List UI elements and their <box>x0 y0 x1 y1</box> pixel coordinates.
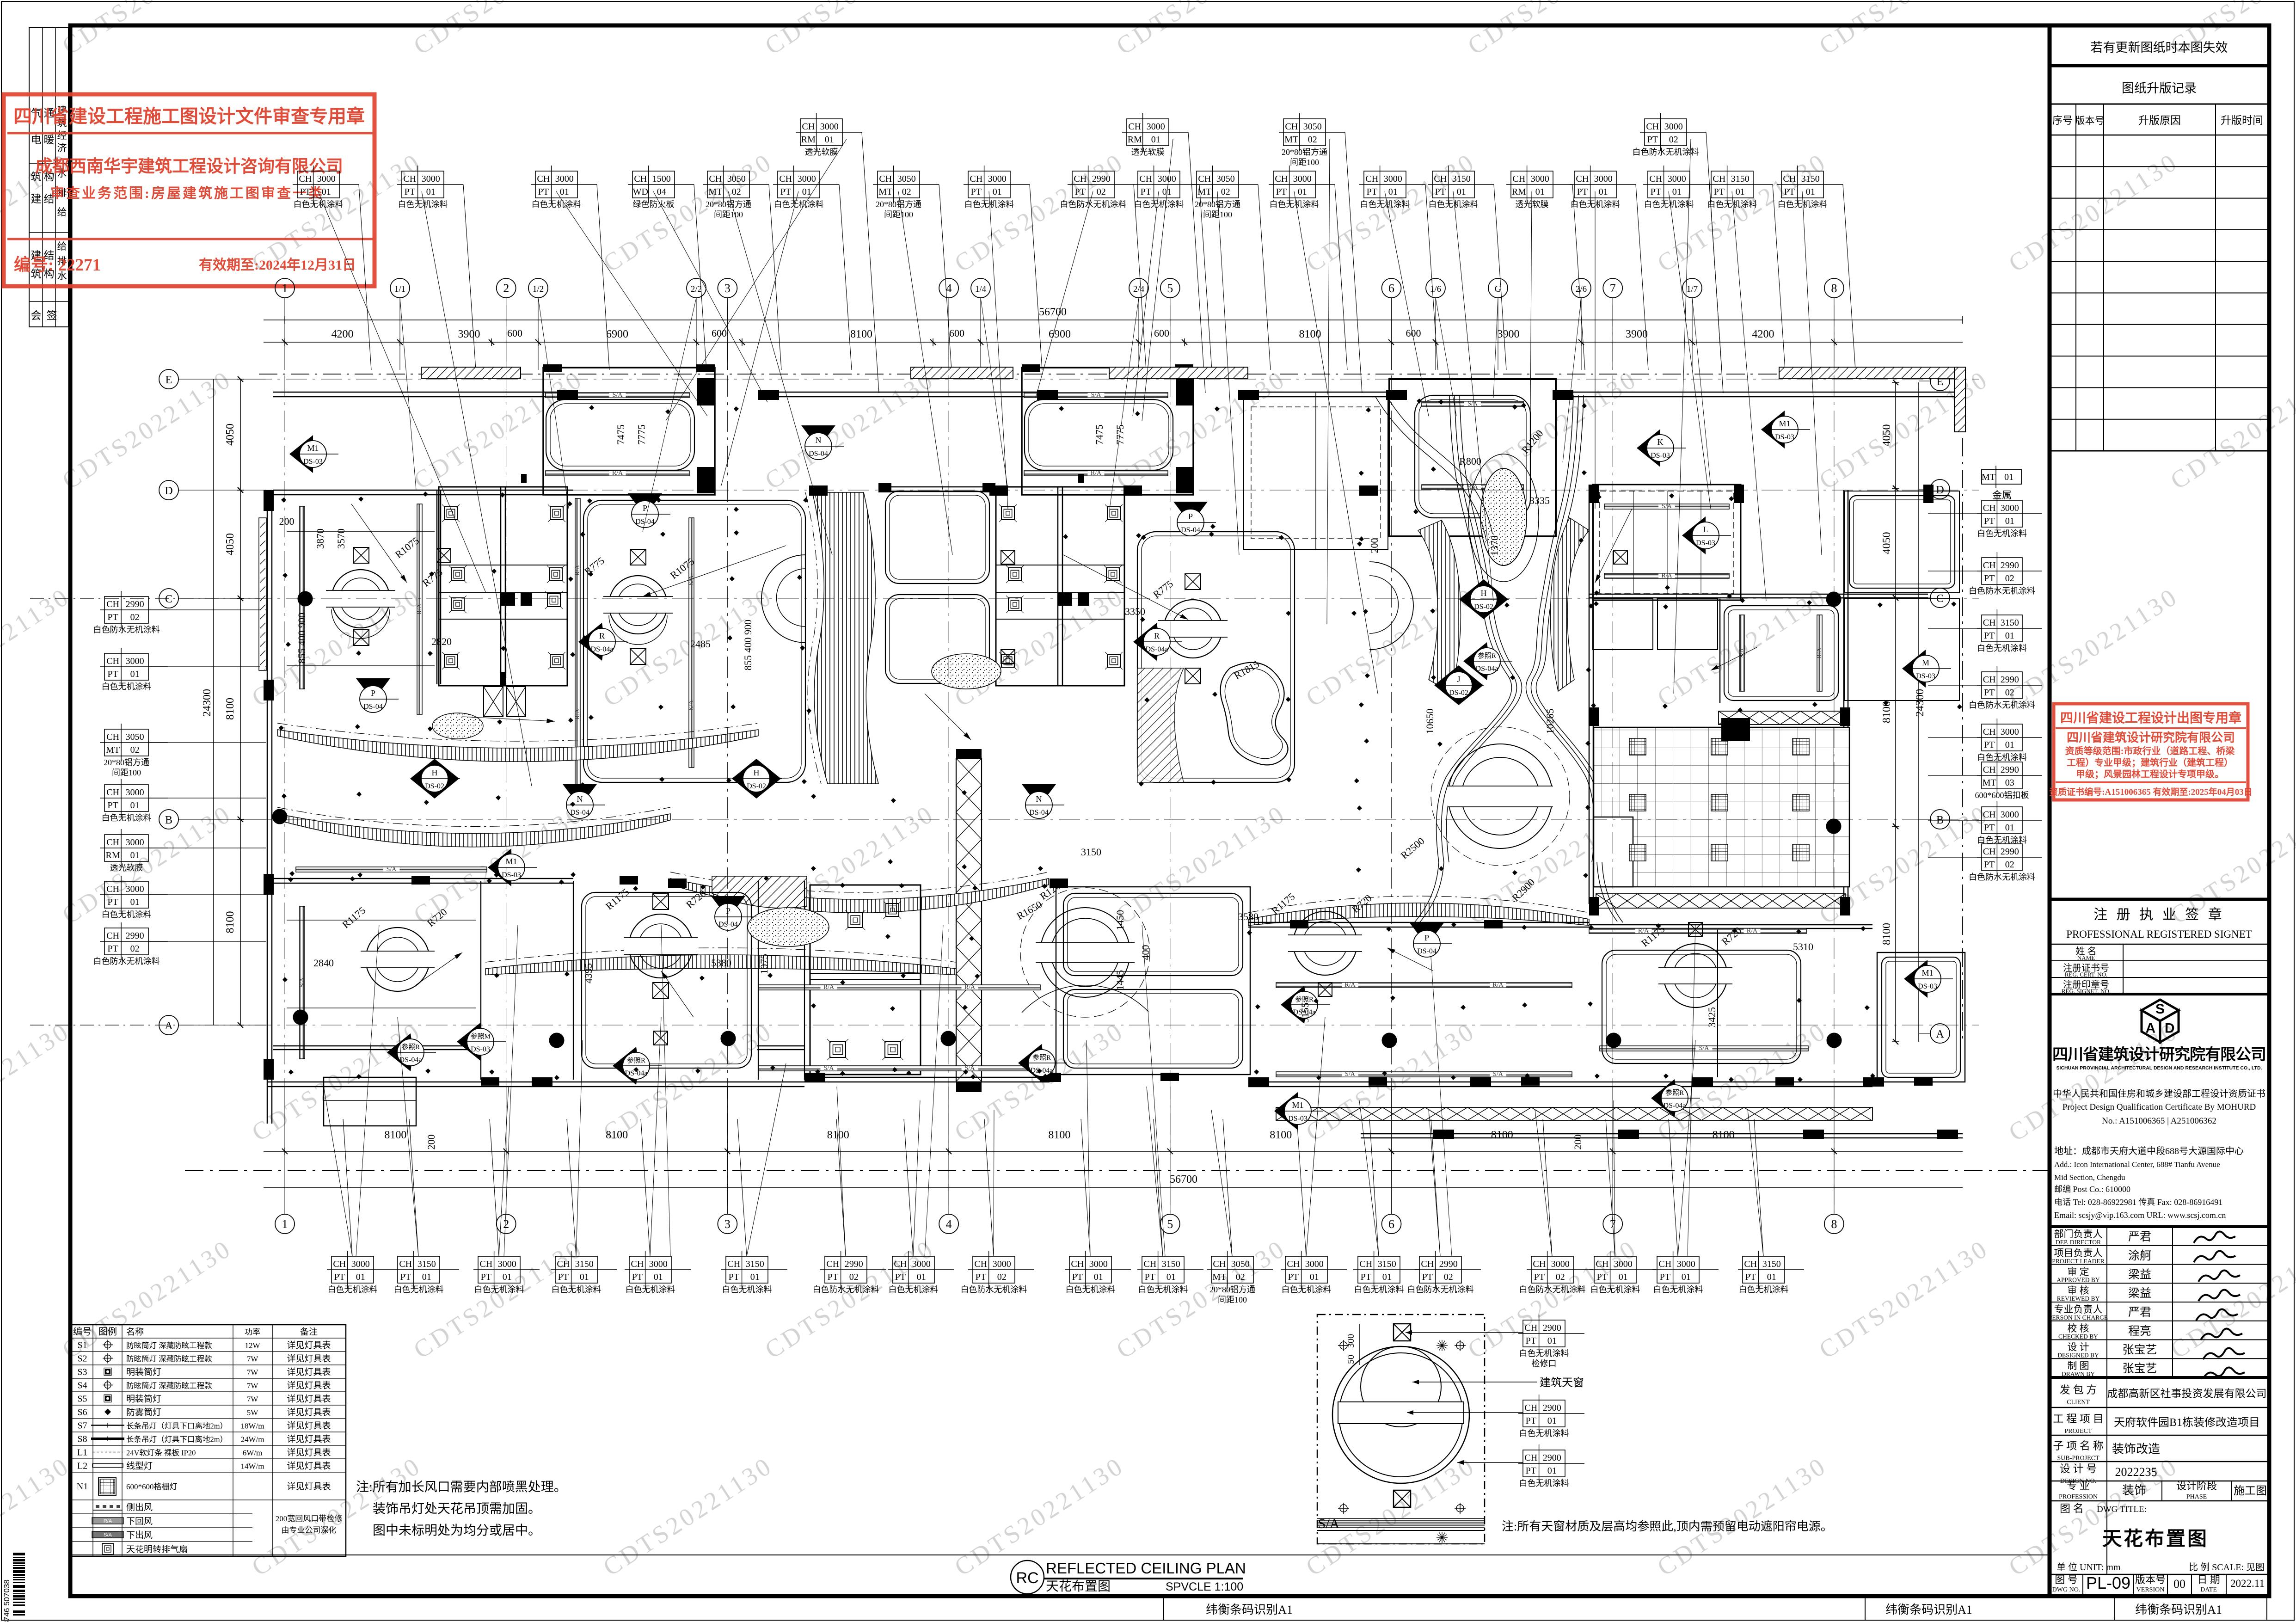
svg-text:N: N <box>816 436 822 445</box>
svg-text:涂舸: 涂舸 <box>2128 1249 2151 1262</box>
svg-text:装饰吊灯处天花吊顶需加固。: 装饰吊灯处天花吊顶需加固。 <box>373 1501 541 1516</box>
svg-text:2990: 2990 <box>1092 174 1111 184</box>
svg-text:长条吊灯（灯具下口离地2m）: 长条吊灯（灯具下口离地2m） <box>126 1435 227 1444</box>
svg-text:四川省建设工程设计出图专用章: 四川省建设工程设计出图专用章 <box>2060 710 2241 725</box>
svg-text:CH: CH <box>106 787 119 798</box>
svg-text:3000: 3000 <box>2001 503 2019 513</box>
svg-text:1370: 1370 <box>1489 535 1500 556</box>
svg-text:升版原因: 升版原因 <box>2138 115 2181 126</box>
svg-text:PT: PT <box>481 1272 491 1282</box>
svg-text:3000: 3000 <box>126 884 144 894</box>
svg-text:01: 01 <box>580 1272 589 1282</box>
svg-text:2990: 2990 <box>2001 560 2019 571</box>
svg-text:R/A: R/A <box>1816 647 1823 658</box>
svg-text:白色无机涂料: 白色无机涂料 <box>328 1285 378 1294</box>
svg-text:1450: 1450 <box>1114 910 1126 930</box>
svg-text:详见灯具表: 详见灯具表 <box>287 1394 331 1404</box>
svg-text:7775: 7775 <box>636 424 647 445</box>
svg-text:PT: PT <box>632 1272 643 1282</box>
svg-text:工程）专业甲级；建筑行业（建筑工程）: 工程）专业甲级；建筑行业（建筑工程） <box>2067 757 2233 768</box>
svg-text:02: 02 <box>1444 1272 1453 1282</box>
svg-text:6: 6 <box>1388 1217 1394 1231</box>
svg-text:3150: 3150 <box>417 1259 436 1269</box>
svg-text:邮编 Post Co.: 610000: 邮编 Post Co.: 610000 <box>2054 1185 2130 1194</box>
svg-text:CH: CH <box>894 1259 907 1269</box>
svg-text:CH: CH <box>1434 174 1447 184</box>
svg-text:注:所有天窗材质及层高均参照此,顶内需预留电动遮阳帘电源。: 注:所有天窗材质及层高均参照此,顶内需预留电动遮阳帘电源。 <box>1502 1520 1833 1533</box>
svg-text:8100: 8100 <box>606 1129 628 1141</box>
svg-text:3000: 3000 <box>498 1259 516 1269</box>
svg-text:S/A: S/A <box>688 700 695 710</box>
svg-text:PT: PT <box>1577 187 1588 197</box>
svg-text:功率: 功率 <box>245 1328 260 1337</box>
svg-text:PT: PT <box>1647 135 1658 145</box>
svg-text:图中未标明处为均分或居中。: 图中未标明处为均分或居中。 <box>373 1523 541 1538</box>
svg-text:4200: 4200 <box>1752 328 1774 340</box>
svg-text:若有更新图纸时本图失效: 若有更新图纸时本图失效 <box>2091 41 2228 55</box>
svg-text:注:所有加长风口需要内部喷黑处理。: 注:所有加长风口需要内部喷黑处理。 <box>356 1480 567 1494</box>
svg-text:检修口: 检修口 <box>1532 1359 1557 1368</box>
svg-text:PT: PT <box>1526 1416 1536 1426</box>
svg-text:PROJECT: PROJECT <box>2064 1428 2092 1435</box>
svg-text:CH: CH <box>1524 1323 1537 1333</box>
svg-text:白色无机涂料: 白色无机涂料 <box>1707 200 1757 209</box>
svg-text:CH: CH <box>1646 122 1659 132</box>
svg-text:Project Design Qualification C: Project Design Qualification Certificate… <box>2063 1102 2256 1112</box>
svg-text:PT: PT <box>1534 1272 1545 1282</box>
svg-text:4: 4 <box>946 282 952 295</box>
svg-text:白色防水无机涂料: 白色防水无机涂料 <box>1969 586 2035 596</box>
svg-text:20*80铝方通: 20*80铝方通 <box>876 200 921 209</box>
svg-text:02: 02 <box>902 187 911 197</box>
svg-text:白色防水无机涂料: 白色防水无机涂料 <box>93 957 160 966</box>
svg-text:855 400 900: 855 400 900 <box>742 620 754 670</box>
svg-text:白色防水无机涂料: 白色防水无机涂料 <box>93 625 160 634</box>
svg-text:3000: 3000 <box>1384 174 1402 184</box>
svg-text:S6: S6 <box>77 1407 87 1418</box>
svg-text:校 核: 校 核 <box>2067 1323 2089 1334</box>
svg-text:02: 02 <box>1236 1272 1245 1282</box>
svg-text:专业负责人: 专业负责人 <box>2054 1304 2103 1315</box>
svg-text:DATE: DATE <box>2200 1586 2217 1593</box>
svg-text:3000: 3000 <box>1614 1259 1633 1269</box>
svg-text:版本号: 版本号 <box>2135 1574 2166 1585</box>
svg-text:K: K <box>1658 437 1664 447</box>
svg-text:DS-04: DS-04 <box>1029 809 1049 817</box>
svg-text:4050: 4050 <box>1881 532 1893 554</box>
svg-text:DS-03: DS-03 <box>1916 672 1935 680</box>
svg-text:3150: 3150 <box>1762 1259 1781 1269</box>
svg-text:DS-03: DS-03 <box>1696 539 1715 547</box>
svg-text:白色无机涂料: 白色无机涂料 <box>1644 200 1694 209</box>
svg-text:张宝艺: 张宝艺 <box>2122 1344 2157 1357</box>
svg-text:PT: PT <box>1072 1272 1083 1282</box>
svg-text:50: 50 <box>1346 1355 1356 1364</box>
svg-text:S7: S7 <box>77 1421 87 1431</box>
svg-text:01: 01 <box>1166 1272 1176 1282</box>
svg-text:白色无机涂料: 白色无机涂料 <box>1653 1285 1703 1294</box>
svg-text:CH: CH <box>1524 1453 1537 1463</box>
svg-text:02: 02 <box>1669 135 1678 145</box>
svg-text:防眩筒灯 深藏防眩工程款: 防眩筒灯 深藏防眩工程款 <box>126 1341 212 1350</box>
svg-text:CH: CH <box>399 1259 412 1269</box>
svg-text:Mid Section, Chengdu: Mid Section, Chengdu <box>2054 1173 2125 1182</box>
svg-text:R/A: R/A <box>612 470 623 477</box>
svg-text:2022.11: 2022.11 <box>2230 1578 2265 1589</box>
svg-text:MT: MT <box>708 187 722 197</box>
svg-text:3570: 3570 <box>335 528 347 549</box>
svg-text:白色无机涂料: 白色无机涂料 <box>474 1285 524 1294</box>
svg-text:会: 会 <box>31 310 42 321</box>
svg-text:04: 04 <box>657 187 666 197</box>
svg-text:R/A: R/A <box>1492 982 1504 989</box>
svg-text:J: J <box>1457 675 1460 684</box>
svg-text:1445: 1445 <box>1114 970 1126 990</box>
svg-text:200: 200 <box>1369 538 1380 553</box>
svg-text:3900: 3900 <box>458 328 480 340</box>
svg-text:白色无机涂料: 白色无机涂料 <box>1519 1429 1569 1438</box>
svg-text:白色无机涂料: 白色无机涂料 <box>294 200 344 209</box>
svg-text:02: 02 <box>1308 135 1317 145</box>
svg-text:PT: PT <box>107 612 118 622</box>
svg-text:参照R: 参照R <box>1478 652 1496 660</box>
svg-text:3050: 3050 <box>1231 1259 1250 1269</box>
svg-text:DS-04: DS-04 <box>1417 947 1437 955</box>
svg-text:DS-04: DS-04 <box>718 921 738 928</box>
svg-text:R/A: R/A <box>574 708 581 719</box>
svg-text:R/A: R/A <box>964 984 976 991</box>
svg-text:CH: CH <box>403 174 416 184</box>
svg-text:8: 8 <box>1831 282 1837 295</box>
svg-text:PT: PT <box>1361 1272 1371 1282</box>
svg-text:REFLECTED CEILING PLAN: REFLECTED CEILING PLAN <box>1046 1560 1246 1577</box>
svg-text:5W: 5W <box>247 1408 259 1417</box>
svg-text:L1: L1 <box>77 1448 87 1458</box>
svg-text:02: 02 <box>732 187 741 197</box>
svg-text:白色无机涂料: 白色无机涂料 <box>1739 1285 1789 1294</box>
svg-text:7: 7 <box>1610 282 1616 295</box>
svg-text:绿色防火板: 绿色防火板 <box>633 200 675 209</box>
svg-text:四川省建筑设计研究院有限公司: 四川省建筑设计研究院有限公司 <box>2052 1045 2266 1063</box>
svg-text:DS-04a: DS-04a <box>399 1056 422 1064</box>
svg-text:CH: CH <box>779 174 792 184</box>
svg-text:DS-04: DS-04 <box>809 450 828 458</box>
svg-text:升版时间: 升版时间 <box>2221 115 2263 126</box>
svg-text:CH: CH <box>1783 174 1796 184</box>
svg-text:3580: 3580 <box>1238 911 1259 922</box>
svg-text:白色无机涂料: 白色无机涂料 <box>1977 836 2027 845</box>
svg-text:01: 01 <box>1547 1336 1557 1346</box>
svg-text:DS-03: DS-03 <box>502 871 521 879</box>
svg-text:白色无机涂料: 白色无机涂料 <box>1066 1285 1116 1294</box>
svg-text:01: 01 <box>1547 1466 1557 1476</box>
svg-text:CH: CH <box>1198 174 1211 184</box>
svg-text:18W/m: 18W/m <box>241 1422 264 1431</box>
svg-text:8100: 8100 <box>1270 1129 1292 1141</box>
svg-text:线型灯: 线型灯 <box>126 1461 153 1471</box>
svg-text:10265: 10265 <box>1544 709 1556 734</box>
svg-text:天花布置图: 天花布置图 <box>2102 1528 2209 1550</box>
svg-text:间距100: 间距100 <box>714 210 743 219</box>
svg-text:3000: 3000 <box>993 1259 1011 1269</box>
svg-text:PT: PT <box>976 1272 986 1282</box>
svg-text:2/6: 2/6 <box>1576 284 1587 294</box>
svg-text:S/A: S/A <box>104 1532 112 1538</box>
svg-text:PT: PT <box>780 187 791 197</box>
svg-text:PT: PT <box>400 1272 411 1282</box>
svg-text:600*600格栅灯: 600*600格栅灯 <box>126 1482 178 1491</box>
svg-text:由专业公司深化: 由专业公司深化 <box>282 1526 337 1535</box>
svg-text:3150: 3150 <box>1081 846 1101 858</box>
svg-text:白色防水无机涂料: 白色防水无机涂料 <box>1633 147 1699 157</box>
svg-text:1/4: 1/4 <box>975 284 987 294</box>
svg-text:3000: 3000 <box>1147 122 1165 132</box>
svg-text:SUB-PROJECT: SUB-PROJECT <box>2057 1455 2099 1462</box>
svg-text:400: 400 <box>1140 945 1151 960</box>
svg-text:成都高新区社事投资发展有限公司: 成都高新区社事投资发展有限公司 <box>2107 1388 2267 1400</box>
svg-text:600: 600 <box>949 327 964 339</box>
svg-text:白色无机涂料: 白色无机涂料 <box>1590 1285 1640 1294</box>
svg-text:透光软膜: 透光软膜 <box>1131 147 1165 157</box>
svg-text:白色无机涂料: 白色无机涂料 <box>626 1285 675 1294</box>
svg-text:CH: CH <box>1713 174 1725 184</box>
svg-text:01: 01 <box>993 187 1002 197</box>
svg-text:CLIENT: CLIENT <box>2067 1399 2090 1406</box>
svg-text:DS-03: DS-03 <box>1775 433 1794 441</box>
svg-text:SICHUAN PROVINCIAL ARCHITECTUR: SICHUAN PROVINCIAL ARCHITECTURAL DESIGN … <box>2057 1065 2262 1071</box>
svg-text:暖: 暖 <box>44 134 55 146</box>
svg-text:间距100: 间距100 <box>1218 1295 1247 1304</box>
svg-text:图例: 图例 <box>98 1327 117 1337</box>
svg-text:3050: 3050 <box>126 732 144 742</box>
svg-text:NAME: NAME <box>2077 954 2095 961</box>
svg-text:01: 01 <box>322 187 331 197</box>
svg-text:CH: CH <box>479 1259 492 1269</box>
svg-text:7475: 7475 <box>615 424 626 445</box>
svg-text:CH: CH <box>1983 847 1996 857</box>
svg-text:3050: 3050 <box>897 174 916 184</box>
svg-text:白色无机涂料: 白色无机涂料 <box>102 813 152 823</box>
svg-text:CH: CH <box>106 732 119 742</box>
svg-text:S1: S1 <box>77 1340 87 1351</box>
svg-text:CH: CH <box>1071 1259 1084 1269</box>
svg-text:MT: MT <box>1982 472 1995 482</box>
svg-text:日 期: 日 期 <box>2197 1574 2220 1585</box>
svg-text:CH: CH <box>333 1259 346 1269</box>
svg-text:8100: 8100 <box>827 1129 849 1141</box>
svg-text:PT: PT <box>1597 1272 1608 1282</box>
svg-text:3000: 3000 <box>422 174 440 184</box>
svg-text:PT: PT <box>1288 1272 1299 1282</box>
svg-text:3050: 3050 <box>1303 122 1322 132</box>
svg-text:PT: PT <box>107 669 118 679</box>
svg-text:L: L <box>1703 525 1708 534</box>
svg-text:PT: PT <box>538 187 549 197</box>
svg-text:PT: PT <box>1422 1272 1433 1282</box>
svg-text:5: 5 <box>1167 282 1173 295</box>
svg-text:PT: PT <box>1526 1466 1536 1476</box>
svg-text:A: A <box>1936 1028 1944 1040</box>
svg-text:CH: CH <box>106 884 119 894</box>
svg-text:透光软膜: 透光软膜 <box>805 147 838 157</box>
svg-text:DS-03: DS-03 <box>1288 1115 1308 1123</box>
svg-text:S/A: S/A <box>1738 648 1745 658</box>
svg-text:10650: 10650 <box>1424 709 1436 734</box>
svg-text:01: 01 <box>2004 472 2014 482</box>
svg-text:56700: 56700 <box>1039 306 1067 318</box>
svg-text:版本号: 版本号 <box>2075 115 2105 126</box>
svg-text:20*80铝方通: 20*80铝方通 <box>1282 147 1327 157</box>
svg-text:3425: 3425 <box>1706 1007 1718 1027</box>
svg-text:PT: PT <box>1141 187 1151 197</box>
svg-text:3350: 3350 <box>1125 606 1145 617</box>
svg-text:金属: 金属 <box>1992 490 2012 501</box>
svg-text:PT: PT <box>1984 823 1995 833</box>
svg-text:白色无机涂料: 白色无机涂料 <box>394 1285 444 1294</box>
svg-text:PROJECT LEADER: PROJECT LEADER <box>2052 1258 2104 1265</box>
svg-text:CH: CH <box>1658 1259 1671 1269</box>
svg-text:3000: 3000 <box>820 122 839 132</box>
svg-text:6W/m: 6W/m <box>243 1449 263 1457</box>
svg-text:01: 01 <box>802 187 811 197</box>
svg-text:3000: 3000 <box>1089 1259 1108 1269</box>
svg-text:PT: PT <box>1984 740 1995 750</box>
svg-text:855 400 900: 855 400 900 <box>296 613 307 664</box>
svg-text:R/A: R/A <box>416 603 423 614</box>
svg-text:2820: 2820 <box>431 636 452 647</box>
svg-text:00: 00 <box>2173 1577 2185 1591</box>
svg-text:1/7: 1/7 <box>1687 284 1698 294</box>
svg-text:S: S <box>2155 1001 2165 1017</box>
svg-text:24300: 24300 <box>201 689 213 717</box>
svg-text:PT: PT <box>1984 631 1995 641</box>
svg-text:RM: RM <box>106 850 120 860</box>
svg-text:比 例 SCALE: 见图: 比 例 SCALE: 见图 <box>2189 1562 2265 1573</box>
svg-text:CH: CH <box>1983 503 1996 513</box>
svg-text:S/A: S/A <box>1318 1516 1340 1531</box>
svg-text:3150: 3150 <box>746 1259 764 1269</box>
svg-text:建筑天窗: 建筑天窗 <box>1540 1376 1584 1389</box>
svg-text:MT: MT <box>1212 1272 1226 1282</box>
svg-text:H: H <box>432 768 438 777</box>
svg-text:12W: 12W <box>245 1341 260 1350</box>
svg-text:CH: CH <box>1213 1259 1226 1269</box>
svg-text:3000: 3000 <box>1594 174 1613 184</box>
svg-text:白色无机涂料: 白色无机涂料 <box>1270 200 1320 209</box>
svg-text:RC: RC <box>1016 1569 1038 1587</box>
svg-text:6693746 507038: 6693746 507038 <box>2 1579 11 1622</box>
svg-text:02: 02 <box>1556 1272 1565 1282</box>
svg-text:白色无机涂料: 白色无机涂料 <box>1360 200 1410 209</box>
svg-text:RM: RM <box>1128 135 1142 145</box>
svg-text:电话 Tel: 028-86922981 传真 Fax:: 电话 Tel: 028-86922981 传真 Fax: 028-8691649… <box>2054 1198 2222 1207</box>
svg-text:01: 01 <box>917 1272 926 1282</box>
svg-text:DEP. DIRECTOR: DEP. DIRECTOR <box>2056 1239 2101 1246</box>
svg-text:01: 01 <box>1094 1272 1103 1282</box>
svg-text:WD: WD <box>633 187 648 197</box>
svg-text:CH: CH <box>709 174 722 184</box>
svg-text:S4: S4 <box>77 1381 87 1391</box>
svg-text:PT: PT <box>1526 1336 1536 1346</box>
svg-text:02: 02 <box>997 1272 1007 1282</box>
svg-text:PT: PT <box>1984 860 1995 870</box>
svg-text:CH: CH <box>1143 1259 1156 1269</box>
svg-text:DS-02: DS-02 <box>1474 603 1493 611</box>
svg-text:CH: CH <box>634 174 647 184</box>
svg-text:DS-04: DS-04 <box>363 703 383 711</box>
svg-text:3000: 3000 <box>351 1259 370 1269</box>
svg-text:02: 02 <box>2005 860 2014 870</box>
svg-text:3000: 3000 <box>1293 174 1312 184</box>
svg-text:纬衡条码识别A1: 纬衡条码识别A1 <box>2135 1603 2222 1616</box>
svg-text:20*80铝方通: 20*80铝方通 <box>1195 200 1240 209</box>
svg-text:56700: 56700 <box>1170 1173 1197 1186</box>
svg-text:CH: CH <box>1576 174 1589 184</box>
svg-text:No.: A151006365 | A25100636: No.: A151006365 | A251006362 <box>2102 1116 2216 1126</box>
svg-text:序号: 序号 <box>2052 115 2073 126</box>
svg-text:CH: CH <box>879 174 892 184</box>
svg-text:2900: 2900 <box>1543 1453 1561 1463</box>
svg-text:3050: 3050 <box>1216 174 1235 184</box>
svg-text:600: 600 <box>1154 327 1169 339</box>
svg-text:MT: MT <box>1197 187 1211 197</box>
svg-text:CH: CH <box>1983 727 1996 737</box>
svg-text:白色无机涂料: 白色无机涂料 <box>398 200 448 209</box>
svg-text:3000: 3000 <box>1664 122 1683 132</box>
svg-text:审 定: 审 定 <box>2067 1266 2089 1278</box>
svg-text:名称: 名称 <box>126 1327 144 1337</box>
svg-text:P: P <box>643 504 647 513</box>
svg-text:天花布置图: 天花布置图 <box>1046 1579 1111 1594</box>
svg-text:7W: 7W <box>247 1382 259 1390</box>
svg-text:M1: M1 <box>307 443 319 453</box>
svg-text:S5: S5 <box>77 1394 87 1404</box>
svg-text:S/A: S/A <box>1345 1071 1356 1078</box>
svg-text:白色防水无机涂料: 白色防水无机涂料 <box>1519 1285 1586 1294</box>
svg-text:详见灯具表: 详见灯具表 <box>287 1434 331 1444</box>
svg-text:R800: R800 <box>1459 455 1481 467</box>
svg-text:01: 01 <box>1682 1272 1691 1282</box>
svg-text:S3: S3 <box>77 1367 87 1377</box>
svg-text:01: 01 <box>1310 1272 1319 1282</box>
svg-text:CH: CH <box>299 174 312 184</box>
svg-text:参照R: 参照R <box>1295 995 1314 1003</box>
svg-text:01: 01 <box>422 1272 431 1282</box>
svg-text:详见灯具表: 详见灯具表 <box>287 1461 331 1471</box>
svg-text:详见灯具表: 详见灯具表 <box>287 1448 331 1458</box>
svg-text:3000: 3000 <box>2001 727 2019 737</box>
svg-text:参照R: 参照R <box>627 1057 645 1064</box>
svg-text:CH: CH <box>1421 1259 1434 1269</box>
svg-text:甲级；风景园林工程设计专项甲级。: 甲级；风景园林工程设计专项甲级。 <box>2076 768 2224 780</box>
svg-text:有效期至:2024年12月31日: 有效期至:2024年12月31日 <box>199 258 356 273</box>
svg-text:01: 01 <box>1547 1416 1557 1426</box>
svg-text:2990: 2990 <box>845 1259 863 1269</box>
svg-text:白色防水无机涂料: 白色防水无机涂料 <box>1969 700 2035 710</box>
svg-text:3150: 3150 <box>1378 1259 1396 1269</box>
svg-text:DWG TITLE:: DWG TITLE: <box>2097 1505 2147 1514</box>
svg-text:严君: 严君 <box>2128 1306 2151 1319</box>
svg-text:20*80铝方通: 20*80铝方通 <box>104 758 149 767</box>
svg-text:2900: 2900 <box>1543 1323 1561 1333</box>
svg-text:DWG NO.: DWG NO. <box>2052 1586 2081 1593</box>
svg-text:3870: 3870 <box>314 528 326 549</box>
svg-text:白色无机涂料: 白色无机涂料 <box>532 200 582 209</box>
svg-text:3000: 3000 <box>1305 1259 1324 1269</box>
svg-text:PT: PT <box>1367 187 1377 197</box>
svg-text:透光软膜: 透光软膜 <box>1516 200 1549 209</box>
svg-text:审查业务范围:房屋建筑施工图审查一类: 审查业务范围:房屋建筑施工图审查一类 <box>50 185 324 201</box>
